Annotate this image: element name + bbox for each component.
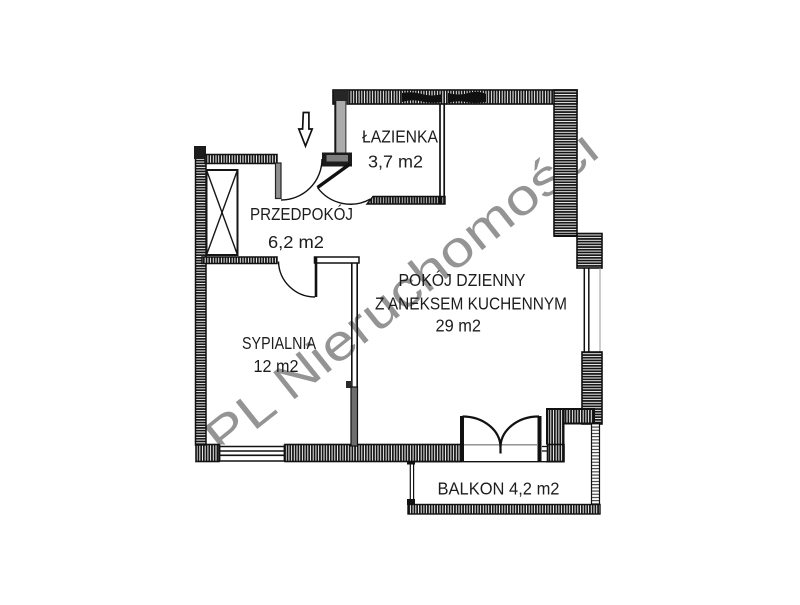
svg-text:ŁAZIENKA: ŁAZIENKA bbox=[362, 127, 438, 147]
svg-text:12 m2: 12 m2 bbox=[254, 356, 299, 376]
svg-text:BALKON 4,2 m2: BALKON 4,2 m2 bbox=[438, 479, 560, 499]
svg-text:3,7 m2: 3,7 m2 bbox=[368, 152, 423, 172]
svg-text:Z ANEKSEM KUCHENNYM: Z ANEKSEM KUCHENNYM bbox=[375, 294, 567, 314]
svg-text:POKÓJ DZIENNY: POKÓJ DZIENNY bbox=[399, 269, 526, 290]
svg-text:PRZEDPOKÓJ: PRZEDPOKÓJ bbox=[250, 203, 353, 224]
svg-text:SYPIALNIA: SYPIALNIA bbox=[242, 333, 316, 353]
svg-text:6,2 m2: 6,2 m2 bbox=[268, 232, 324, 252]
svg-text:29 m2: 29 m2 bbox=[436, 316, 482, 336]
